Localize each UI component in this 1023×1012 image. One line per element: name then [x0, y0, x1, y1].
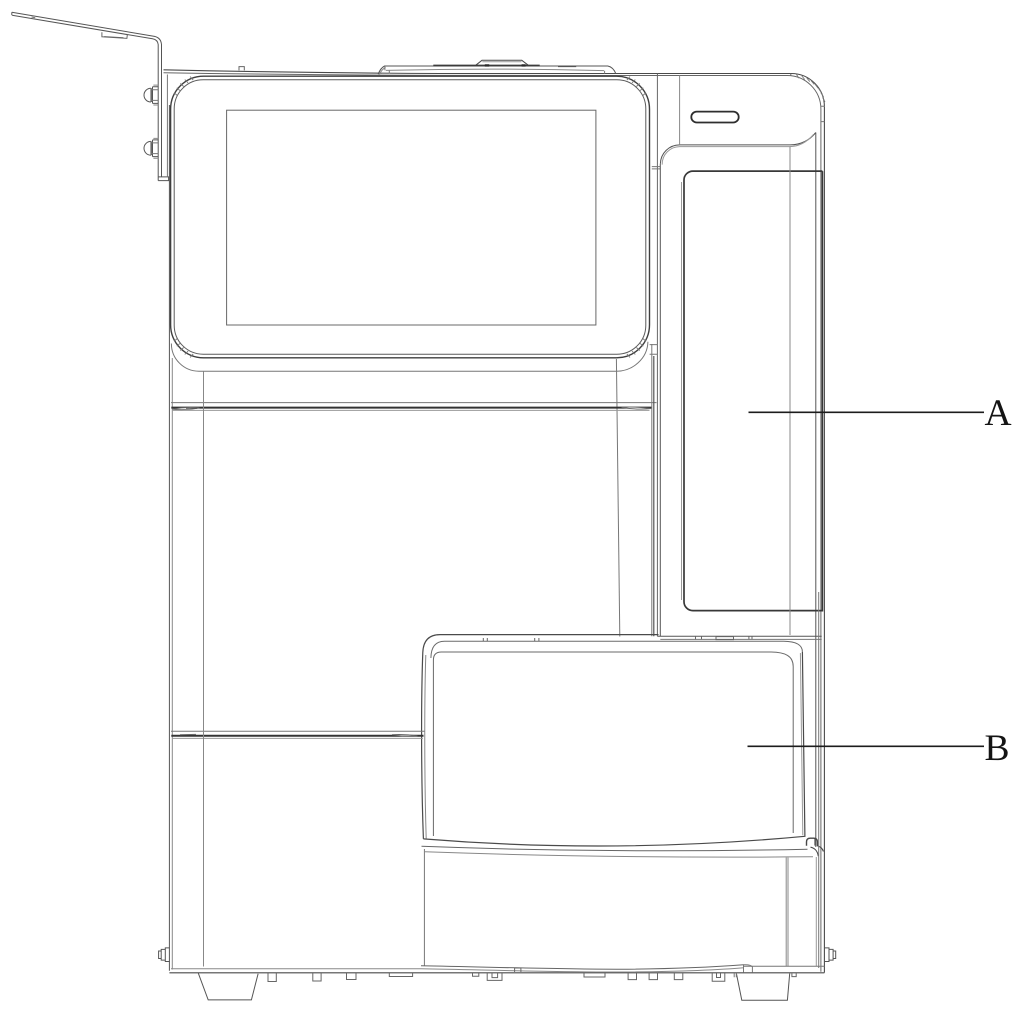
svg-text:B: B	[985, 728, 1010, 769]
svg-text:A: A	[985, 393, 1012, 434]
